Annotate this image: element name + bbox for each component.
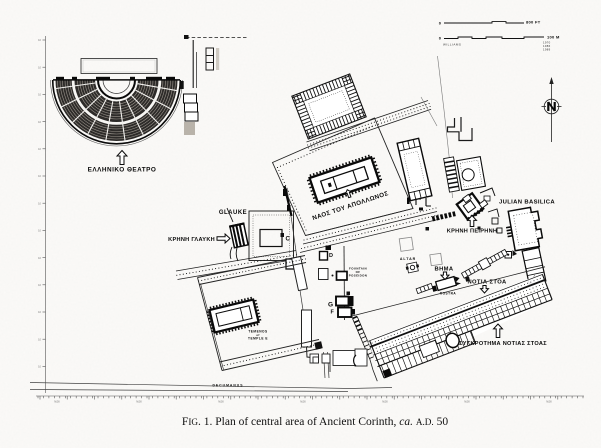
svg-text:FIG. 1. Plan of central area o: FIG. 1. Plan of central area of Ancient …	[182, 416, 448, 428]
svg-text:C: C	[286, 237, 291, 243]
svg-text:ΣΥΓΚΡΟΤΗΜΑ ΝΟΤΙΑΣ ΣΤΟΑΣ: ΣΥΓΚΡΟΤΗΜΑ ΝΟΤΙΑΣ ΣΤΟΑΣ	[459, 341, 547, 347]
svg-text:N|00: N|00	[382, 400, 388, 404]
svg-text:ΚΡΗΝΗ ΠΕΙΡΗΝΗ: ΚΡΗΝΗ ΠΕΙΡΗΝΗ	[447, 229, 498, 235]
svg-text:POSEIDON: POSEIDON	[349, 274, 367, 278]
svg-text:N|00: N|00	[546, 400, 552, 404]
svg-text:TEMPLE E: TEMPLE E	[248, 337, 268, 341]
svg-text:N|00: N|00	[54, 400, 60, 404]
svg-text:DECUMANUS: DECUMANUS	[212, 383, 243, 387]
svg-text:ΕΛΛΗΝΙΚΟ ΘΕΑΤΡΟ: ΕΛΛΗΝΙΚΟ ΘΕΑΤΡΟ	[88, 167, 157, 174]
svg-text:100 M: 100 M	[547, 35, 560, 40]
svg-text:800 FT: 800 FT	[526, 20, 541, 25]
svg-text:N|00: N|00	[464, 400, 470, 404]
svg-text:ΚΡΗΝΗ ΓΛΑΥΚΗ: ΚΡΗΝΗ ΓΛΑΥΚΗ	[168, 237, 215, 243]
svg-text:N|00: N|00	[218, 400, 224, 404]
svg-text:N|00: N|00	[136, 400, 142, 404]
svg-text:1989: 1989	[543, 48, 551, 52]
svg-text:WILLIAMS: WILLIAMS	[443, 43, 461, 47]
svg-text:GLAUKE: GLAUKE	[219, 210, 247, 216]
svg-text:ALTAR: ALTAR	[400, 257, 416, 261]
svg-text:ROSTRA: ROSTRA	[440, 292, 457, 296]
svg-text:G: G	[328, 302, 333, 309]
svg-text:ΝΟΤΙΑ ΣΤΟΑ: ΝΟΤΙΑ ΣΤΟΑ	[467, 279, 507, 285]
svg-text:JULIAN BASILICA: JULIAN BASILICA	[499, 199, 555, 205]
svg-text:N|00: N|00	[300, 400, 306, 404]
svg-text:D: D	[329, 253, 333, 259]
